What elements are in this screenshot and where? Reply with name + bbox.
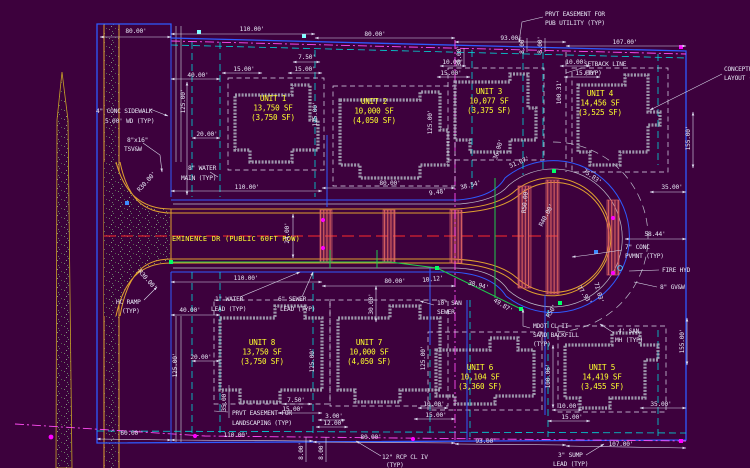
callout-conc-pvmt: 7" CONC: [625, 244, 650, 251]
easement-node: [302, 34, 306, 38]
callout-water-lead: LEAD (TYP): [211, 306, 246, 313]
dim-label: 7.50': [298, 54, 316, 61]
unit-label: UNIT 6: [467, 363, 494, 372]
easement-node: [679, 439, 683, 443]
dim-label: 38.54': [460, 180, 482, 192]
callout-gvw: 8" GV&W: [660, 284, 685, 291]
dim-label: 125.00': [420, 346, 427, 371]
unit-label: (4,050 SF): [352, 116, 396, 125]
unit-label: 14,419 SF: [582, 373, 622, 382]
dim-label: 24.00': [284, 222, 291, 243]
utility-node: [435, 266, 439, 270]
callout-water-main: 8" WATER: [188, 165, 217, 172]
dim-label: 15.00': [294, 66, 315, 73]
callout-tsvw: 8"x16": [127, 137, 148, 144]
unit-label: 10,077 SF: [469, 97, 509, 106]
callout-sump-lead: LEAD (TYP): [553, 461, 588, 468]
callout-pub-utility: PUB UTILITY (TYP): [545, 20, 605, 27]
dim-label: 110.00': [240, 26, 265, 33]
callout-sand-backfill: MDOT CL II: [533, 323, 569, 330]
callout-setback-line: SETBACK LINE: [584, 61, 627, 68]
dim-label: 20.00': [196, 131, 217, 138]
dim-label: 100.31': [556, 80, 563, 105]
callout-pub-utility: PRVT EASEMENT FOR: [545, 11, 605, 18]
dim-label: 10.00': [558, 403, 579, 410]
dim-label: 8.00': [298, 442, 305, 460]
unit-label: 10,000 SF: [354, 107, 394, 116]
easement-node: [49, 435, 54, 440]
easement-node: [197, 30, 201, 34]
callout-conc-sidewalk: 4" CONC SIDEWALK: [96, 108, 153, 115]
callout-sand-backfill: SAND BACKFILL: [533, 332, 579, 339]
callout-landscaping: PRVT EASEMENT FOR: [232, 410, 292, 417]
dim-label: 60.00': [120, 430, 141, 437]
easement-node: [321, 246, 325, 250]
dim-label: 35.00': [661, 184, 682, 191]
dim-label: R30.00': [136, 170, 158, 193]
dim-label: 9.48': [429, 188, 447, 197]
dim-label: 20.00': [190, 354, 211, 361]
dim-label: 10.00': [423, 401, 444, 408]
dim-label: R30.00': [136, 268, 158, 291]
dim-label: 58.44': [644, 231, 665, 238]
unit-label: 14,456 SF: [580, 99, 620, 108]
callout-sump-lead: 3" SUMP: [558, 452, 583, 459]
dim-label: 80.00': [360, 434, 381, 441]
dim-label: R50': [545, 303, 558, 319]
easement-node: [321, 218, 325, 222]
dim-label: 8.00': [318, 442, 325, 460]
unit-label: (3,375 SF): [467, 106, 511, 115]
dim-label: 7.50': [287, 397, 305, 404]
unit-label: (3,360 SF): [458, 382, 502, 391]
callout-hc-ramp: (TYP): [122, 308, 140, 315]
callout-rcp: 12" RCP CL IV: [382, 454, 428, 461]
utility-node: [552, 169, 556, 173]
unit-label: (4,050 SF): [347, 357, 391, 366]
dim-label: 40.00': [187, 72, 208, 79]
callout-conceptual-layout: LAYOUT (TYP): [724, 75, 750, 82]
dim-label: 125.00': [180, 89, 187, 114]
utility-node: [125, 201, 129, 205]
dim-label: 80.00': [364, 31, 385, 38]
unit-label: 13,750 SF: [253, 104, 293, 113]
dim-label: 71.03': [592, 281, 605, 303]
unit-label: 10,104 SF: [460, 373, 500, 382]
callout-san-sewer: SEWER: [437, 309, 455, 316]
dim-label: 93.00': [475, 438, 496, 445]
setback-rect: [228, 78, 324, 170]
dim-label: 100.06': [545, 364, 552, 389]
unit-label: UNIT 1: [260, 94, 287, 103]
unit-label: UNIT 3: [476, 87, 502, 96]
easement-node: [611, 271, 615, 275]
dim-label: 107.00': [609, 441, 634, 448]
dim-label: 155.00': [679, 329, 686, 354]
dim-label: 15.00': [425, 412, 446, 419]
unit-label: (3,750 SF): [240, 357, 284, 366]
utility-node: [169, 260, 173, 264]
dim-label: 15.00': [561, 414, 582, 421]
dim-label: 80.00': [125, 28, 146, 35]
utility-node: [519, 307, 523, 311]
callout-san-sewer: 10" SAN: [437, 300, 462, 307]
pavement-hatch-band: [546, 180, 559, 294]
dim-label: 125.00': [312, 102, 319, 127]
dim-label: 15.00': [233, 66, 254, 73]
callout-setback-line: (TYP): [584, 70, 602, 77]
dim-label: 51.07': [508, 155, 530, 169]
callout-san-mh: MH (TYP): [615, 337, 643, 344]
callout-water-main: MAIN (TYP): [181, 175, 216, 182]
callout-sewer-lead: 6" SEWER: [278, 296, 307, 303]
dim-label: 12.00': [323, 420, 344, 427]
callout-sand-backfill: (TYP): [533, 341, 551, 348]
unit-label: (3,525 SF): [578, 108, 622, 117]
dim-label: 125.00': [309, 348, 316, 373]
dim-label: 80.00': [384, 278, 405, 285]
callout-tsvw: TSV&W: [124, 146, 142, 153]
unit-label: 13,750 SF: [242, 348, 282, 357]
dim-label: 155.00': [685, 126, 692, 151]
callout-conc-pvmt: PVMNT (TYP): [625, 253, 664, 260]
cad-viewport[interactable]: EMINENCE DR (PUBLIC 60FT ROW) UNIT 1 13,…: [0, 0, 750, 468]
utility-node: [558, 301, 562, 305]
site-plan-drawing: EMINENCE DR (PUBLIC 60FT ROW) UNIT 1 13,…: [0, 0, 750, 468]
dim-label: 8.00': [519, 36, 526, 54]
unit-label: UNIT 2: [361, 97, 387, 106]
unit-label: UNIT 4: [587, 89, 614, 98]
dim-label: 110.00': [234, 275, 259, 282]
pavement-hatch-band: [450, 210, 462, 263]
unit-label: (3,455 SF): [580, 382, 624, 391]
callout-fire-hyd: FIRE HYD: [662, 267, 691, 274]
callout-hc-ramp: HC RAMP: [116, 299, 141, 306]
dim-label: 36.00': [492, 138, 505, 160]
dim-label: 110.00': [224, 432, 249, 439]
street-name-label: EMINENCE DR (PUBLIC 60FT ROW): [172, 235, 300, 243]
callout-conc-sidewalk: 5.00' WD (TYP): [105, 118, 154, 125]
pavement-hatch-band: [607, 200, 619, 275]
dim-label: 10.12': [422, 275, 444, 284]
callout-landscaping: LANDSCAPING (TYP): [232, 420, 292, 427]
unit-label: UNIT 5: [589, 363, 615, 372]
dim-label: 35.00': [221, 390, 228, 411]
dim-label: 38.94': [467, 280, 489, 292]
unit-label: (3,750 SF): [251, 113, 295, 122]
easement-node: [193, 434, 197, 438]
pavement-hatch-band: [383, 210, 395, 263]
dim-label: 125.00': [427, 110, 434, 135]
dim-label: 3.00': [325, 413, 343, 420]
callout-conceptual-layout: CONCEPTUAL: [724, 66, 750, 73]
dim-label: 8.00': [537, 36, 544, 54]
dim-label: 40.00': [179, 307, 200, 314]
unit-label: 10,000 SF: [349, 348, 389, 357]
dim-label: 125.00': [172, 353, 179, 378]
easement-node: [679, 45, 683, 49]
callout-sewer-lead: LEAD (TYP): [280, 306, 315, 313]
dim-label: 35.00': [456, 45, 463, 66]
unit-label: UNIT 7: [356, 338, 382, 347]
unit-label: UNIT 8: [249, 338, 276, 347]
dim-label: 80.00': [379, 180, 400, 187]
easement-node: [611, 216, 615, 220]
callout-san-mh: 4' SAN: [618, 328, 640, 335]
dim-label: 107.00': [613, 39, 638, 46]
dim-label: 35.00': [650, 401, 671, 408]
dim-label: 15.00': [440, 70, 461, 77]
easement-node: [411, 437, 415, 441]
dim-label: 30.00': [368, 293, 375, 314]
callout-rcp: (TYP): [386, 462, 404, 468]
dim-label: 110.00': [235, 184, 260, 191]
callout-water-lead: 1" WATER: [215, 296, 244, 303]
